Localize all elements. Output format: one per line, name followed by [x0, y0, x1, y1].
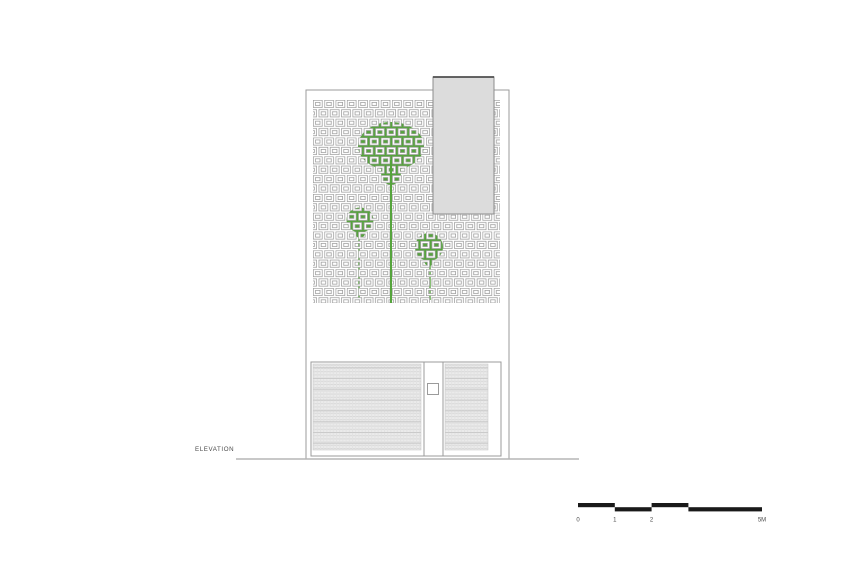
scale-bar-label: 1	[613, 517, 617, 523]
scale-bar: 0125M	[576, 503, 766, 523]
tree-trunk	[390, 160, 392, 303]
gate-left-shutter-bands	[313, 364, 421, 450]
scale-bar-label: 0	[576, 517, 580, 523]
elevation-drawing: ELEVATION 0125M	[0, 0, 860, 573]
tower-volume	[433, 77, 494, 214]
gate-section	[311, 362, 501, 456]
scale-bar-segment	[652, 503, 689, 507]
tree-trunk-front-layer	[390, 160, 392, 303]
scale-bar-segment	[688, 507, 762, 511]
pillar-lamp-square	[428, 384, 439, 395]
scale-bar-label: 2	[650, 517, 654, 523]
gate-right-shutter-bands	[445, 364, 488, 450]
gate-pillar	[424, 362, 443, 456]
scale-bar-label: 5M	[758, 517, 766, 523]
elevation-label: ELEVATION	[195, 446, 234, 453]
scale-bar-segment	[615, 507, 652, 511]
scale-bar-segment	[578, 503, 615, 507]
elevation-sheet: ELEVATION 0125M	[0, 0, 860, 573]
